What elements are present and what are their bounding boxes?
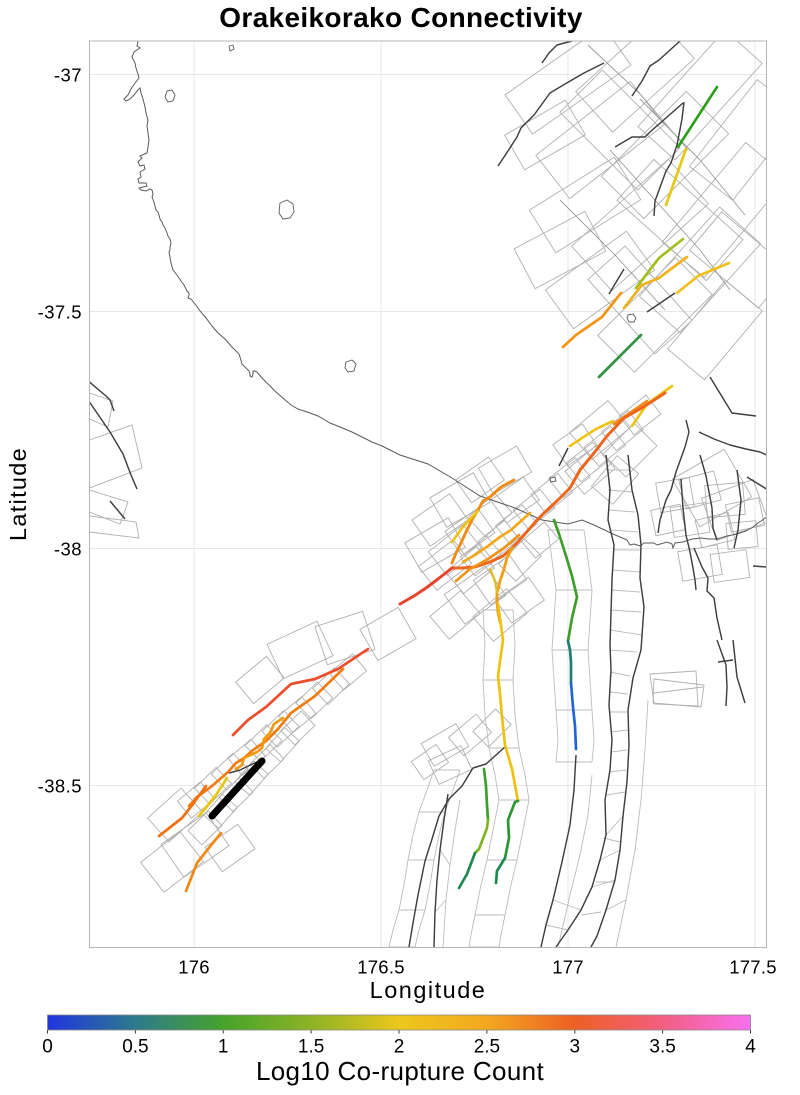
svg-text:Log10 Co-rupture Count: Log10 Co-rupture Count	[256, 1056, 545, 1086]
svg-text:176: 176	[178, 957, 210, 978]
svg-text:177: 177	[552, 957, 584, 978]
svg-text:0: 0	[42, 1037, 53, 1058]
svg-text:177.5: 177.5	[729, 957, 777, 978]
svg-text:-37: -37	[54, 65, 82, 86]
svg-text:-38.5: -38.5	[38, 776, 82, 797]
svg-text:2: 2	[394, 1037, 405, 1058]
svg-text:4: 4	[745, 1037, 756, 1058]
svg-text:Orakeikorako Connectivity: Orakeikorako Connectivity	[219, 2, 583, 33]
svg-text:2.5: 2.5	[474, 1037, 500, 1058]
svg-text:3: 3	[570, 1037, 581, 1058]
svg-text:0.5: 0.5	[122, 1037, 148, 1058]
svg-text:Longitude: Longitude	[370, 977, 487, 1003]
svg-text:Latitude: Latitude	[5, 447, 31, 541]
svg-text:3.5: 3.5	[649, 1037, 675, 1058]
svg-text:1: 1	[218, 1037, 229, 1058]
svg-text:176.5: 176.5	[357, 957, 405, 978]
svg-text:1.5: 1.5	[298, 1037, 324, 1058]
svg-text:-38: -38	[54, 539, 82, 560]
svg-text:-37.5: -37.5	[38, 302, 82, 323]
